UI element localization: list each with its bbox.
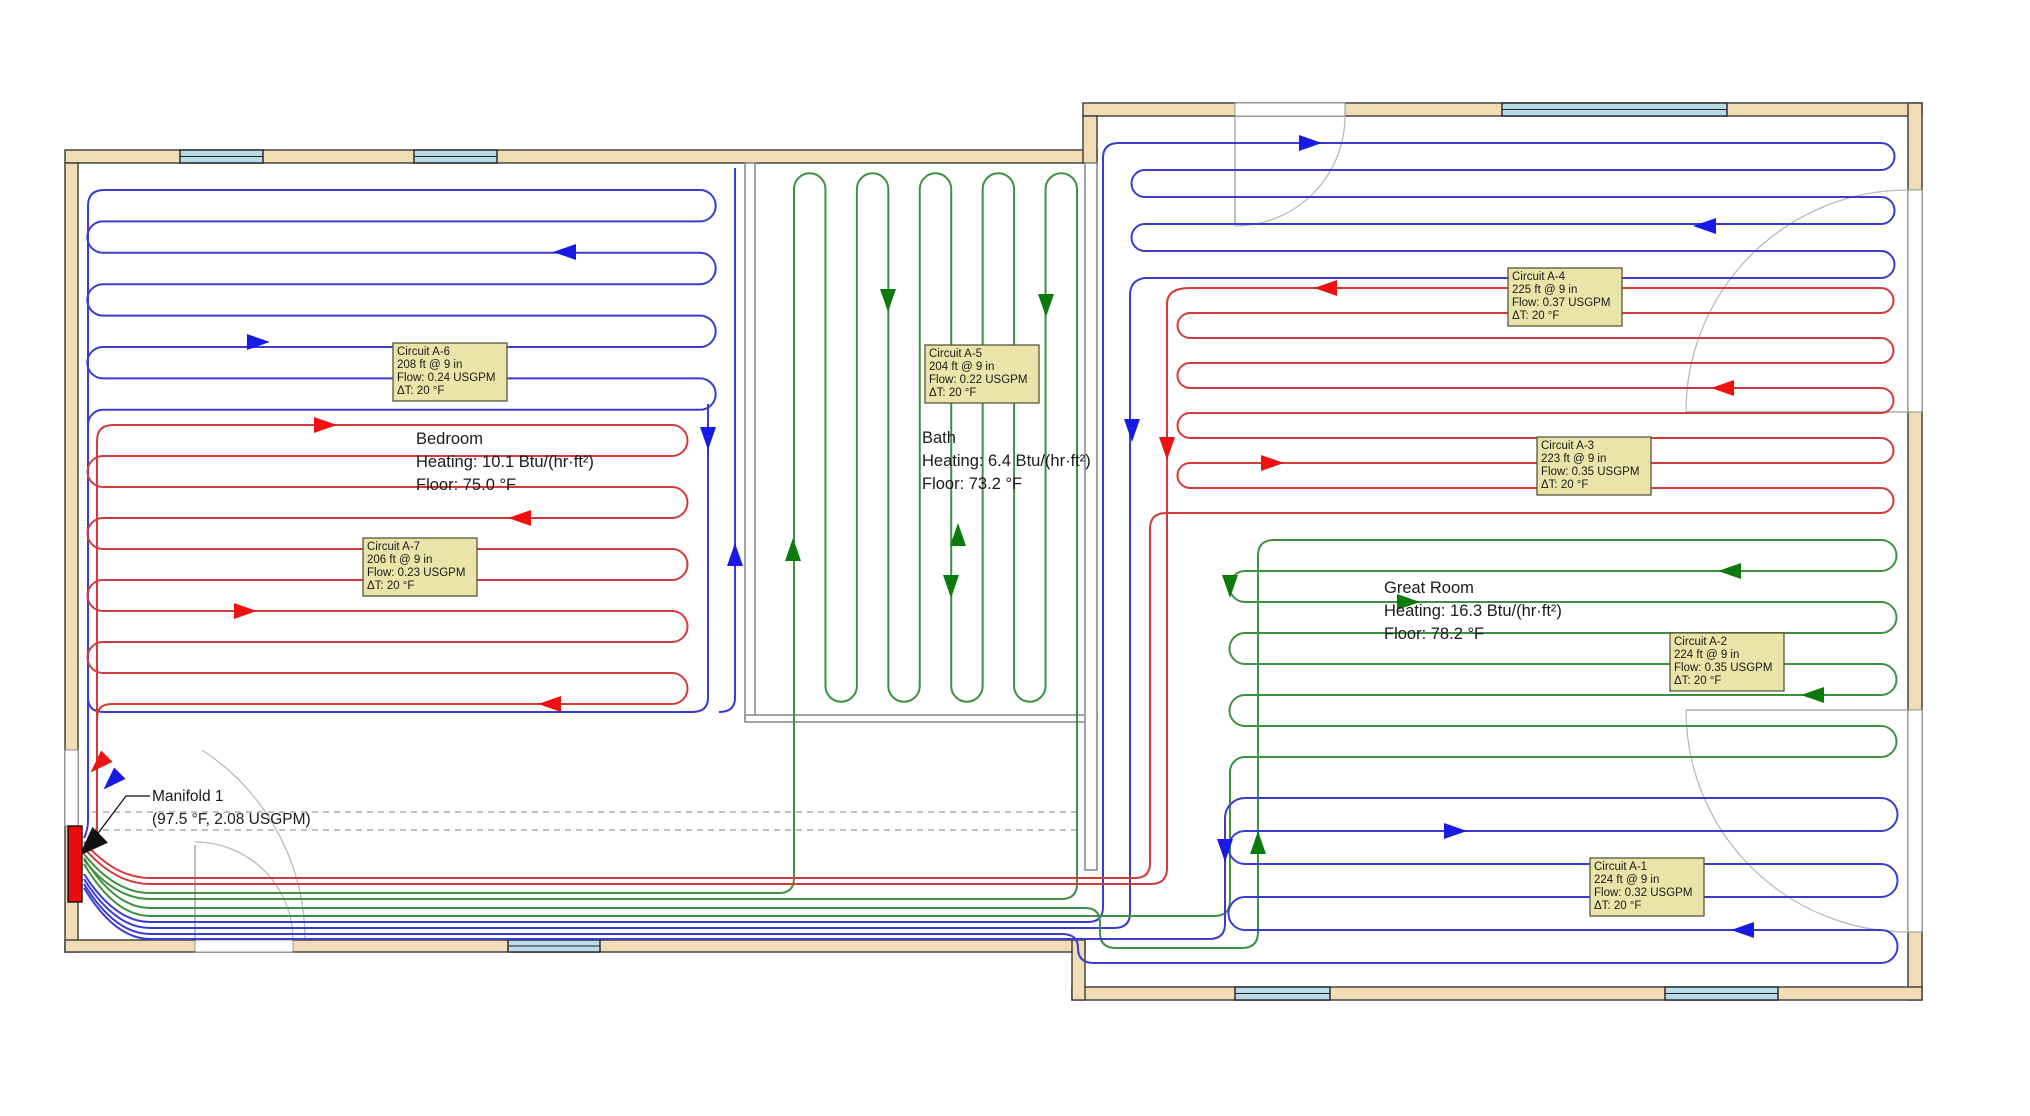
circuit-label-a5[interactable]: Circuit A-5204 ft @ 9 inFlow: 0.22 USGPM…: [925, 345, 1039, 403]
circuit-dt: ΔT: 20 °F: [1594, 900, 1641, 912]
circuit-flow: Flow: 0.37 USGPM: [1512, 297, 1610, 309]
circuit-name: Circuit A-3: [1541, 440, 1594, 452]
circuit-label-a4[interactable]: Circuit A-4225 ft @ 9 inFlow: 0.37 USGPM…: [1508, 268, 1622, 326]
door-opening-right-upper: [1908, 190, 1922, 412]
circuit-label-a2[interactable]: Circuit A-2224 ft @ 9 inFlow: 0.35 USGPM…: [1670, 633, 1784, 691]
room-name: Bath: [922, 429, 956, 447]
door-opening-bottom-left: [195, 940, 293, 952]
right-building-floor: [1097, 116, 1908, 987]
window: [508, 940, 600, 952]
circuit-name: Circuit A-5: [929, 348, 982, 360]
circuit-label-a6[interactable]: Circuit A-6208 ft @ 9 inFlow: 0.24 USGPM…: [393, 343, 507, 401]
manifold-detail: (97.5 °F, 2.08 USGPM): [152, 811, 311, 828]
room-heating: Heating: 6.4 Btu/(hr·ft²): [922, 452, 1091, 470]
circuit-name: Circuit A-2: [1674, 636, 1727, 648]
circuit-flow: Flow: 0.35 USGPM: [1541, 466, 1639, 478]
room-floor: Floor: 73.2 °F: [922, 475, 1022, 493]
circuit-dt: ΔT: 20 °F: [397, 385, 444, 397]
circuit-dt: ΔT: 20 °F: [1541, 479, 1588, 491]
window: [1502, 103, 1727, 116]
radiant-floor-plan: Manifold 1 (97.5 °F, 2.08 USGPM) Bedroom…: [0, 0, 2030, 1116]
room-floor: Floor: 75.0 °F: [416, 476, 516, 494]
circuit-label-a7[interactable]: Circuit A-7206 ft @ 9 inFlow: 0.23 USGPM…: [363, 538, 477, 596]
circuit-name: Circuit A-7: [367, 541, 420, 553]
circuit-length: 223 ft @ 9 in: [1541, 453, 1606, 465]
circuit-flow: Flow: 0.32 USGPM: [1594, 887, 1692, 899]
wall-bath-bottom: [745, 715, 1097, 722]
circuit-length: 224 ft @ 9 in: [1594, 874, 1659, 886]
wall-connector: [1083, 116, 1097, 163]
circuit-flow: Flow: 0.24 USGPM: [397, 372, 495, 384]
manifold[interactable]: [68, 826, 82, 902]
room-name: Great Room: [1384, 579, 1474, 597]
circuit-label-a1[interactable]: Circuit A-1224 ft @ 9 inFlow: 0.32 USGPM…: [1590, 858, 1704, 916]
window: [414, 150, 497, 163]
circuit-name: Circuit A-6: [397, 346, 450, 358]
room-heating: Heating: 10.1 Btu/(hr·ft²): [416, 453, 594, 471]
window: [180, 150, 263, 163]
circuit-flow: Flow: 0.23 USGPM: [367, 567, 465, 579]
circuit-dt: ΔT: 20 °F: [367, 580, 414, 592]
wall-hall-greatroom: [1085, 163, 1097, 870]
window: [1665, 987, 1778, 1000]
circuit-name: Circuit A-1: [1594, 861, 1647, 873]
manifold-name: Manifold 1: [152, 788, 224, 805]
door-opening-top: [1235, 103, 1345, 116]
circuit-length: 225 ft @ 9 in: [1512, 284, 1577, 296]
room-name: Bedroom: [416, 430, 483, 448]
circuit-length: 224 ft @ 9 in: [1674, 649, 1739, 661]
manifold-marker[interactable]: [68, 826, 82, 902]
room-interiors: [78, 116, 1908, 987]
door-opening-right-lower: [1908, 710, 1922, 932]
circuit-length: 206 ft @ 9 in: [367, 554, 432, 566]
floorplan-canvas: Manifold 1 (97.5 °F, 2.08 USGPM) Bedroom…: [0, 0, 2030, 1116]
room-heating: Heating: 16.3 Btu/(hr·ft²): [1384, 602, 1562, 620]
circuit-dt: ΔT: 20 °F: [1674, 675, 1721, 687]
wall-bedroom-bath: [745, 163, 755, 720]
circuit-dt: ΔT: 20 °F: [1512, 310, 1559, 322]
room-floor: Floor: 78.2 °F: [1384, 625, 1484, 643]
circuit-length: 208 ft @ 9 in: [397, 359, 462, 371]
circuit-dt: ΔT: 20 °F: [929, 387, 976, 399]
circuit-flow: Flow: 0.35 USGPM: [1674, 662, 1772, 674]
circuit-name: Circuit A-4: [1512, 271, 1566, 283]
window: [1235, 987, 1330, 1000]
door-opening-left: [65, 750, 78, 826]
circuit-label-a3[interactable]: Circuit A-3223 ft @ 9 inFlow: 0.35 USGPM…: [1537, 437, 1651, 495]
wall-bottom-right-building: [1072, 987, 1922, 1000]
circuit-flow: Flow: 0.22 USGPM: [929, 374, 1027, 386]
circuit-length: 204 ft @ 9 in: [929, 361, 994, 373]
